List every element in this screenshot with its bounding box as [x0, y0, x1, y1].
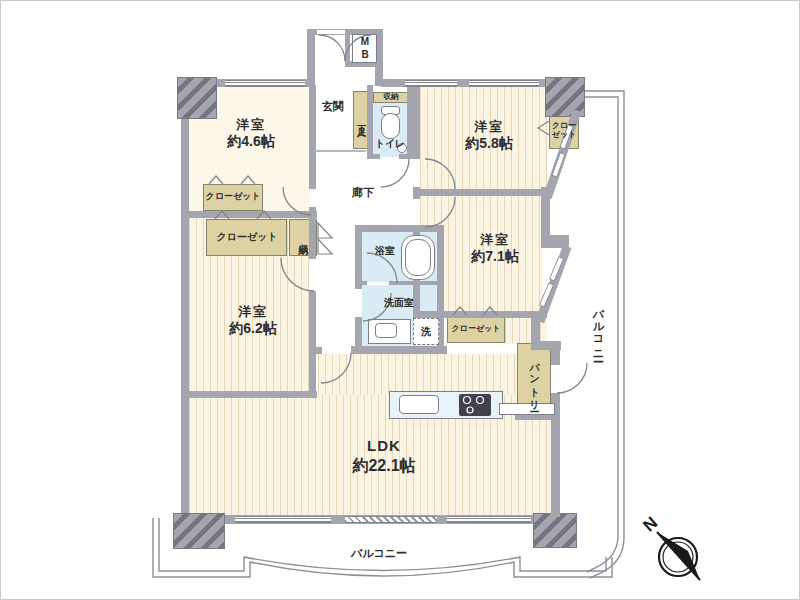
closet-chevron [453, 307, 467, 315]
bathroom-door-arc [367, 253, 397, 283]
ldk-door-arc [321, 353, 351, 383]
window [540, 283, 554, 307]
toilet-door-arc [381, 159, 409, 187]
room-name: 洋室 [465, 119, 512, 135]
bifold-door [318, 239, 332, 254]
room-label-bedroom71: 洋室 約7.1帖 [471, 232, 518, 266]
shoe-box-label: 下足入 [355, 119, 368, 122]
bedroom71-door-arc [425, 197, 455, 227]
toilet-label: トイレ [375, 138, 406, 151]
room-size: 約22.1帖 [352, 455, 415, 475]
room-label-bedroom58: 洋室 約5.8帖 [465, 119, 512, 153]
washroom-label: 洗面室 [384, 297, 414, 310]
room-size: 約6.2帖 [229, 320, 276, 338]
storage-label-bedroom62: 収納 [296, 236, 310, 238]
room-name: LDK [352, 437, 415, 456]
bedroom62-door-arc [281, 258, 314, 291]
room-size: 約4.6帖 [227, 133, 274, 151]
room-label-ldk: LDK 約22.1帖 [352, 437, 415, 476]
door-arcs [281, 35, 587, 393]
kitchen-stove-burners [464, 397, 484, 414]
balcony-door-arc [557, 363, 587, 393]
entrance-door-arc [319, 35, 345, 61]
balcony-bottom-inner [159, 518, 606, 571]
closet-chevron [241, 176, 255, 184]
closet-chevron [209, 176, 223, 184]
room-size: 約7.1帖 [471, 248, 518, 266]
window [552, 153, 565, 177]
room-size: 約5.8帖 [465, 135, 512, 153]
room-name: 洋室 [227, 117, 274, 133]
bedroom58-door-arc [425, 159, 455, 189]
closet-label-bedroom58: クローゼット [551, 121, 577, 139]
bedroom46-door-arc [283, 187, 311, 215]
closet-chevron [538, 121, 549, 135]
room-label-bedroom46: 洋室 約4.6帖 [227, 117, 274, 151]
burner [464, 397, 471, 404]
closet-label-bedroom71: クローゼット [452, 324, 501, 333]
hallway-label: 廊下 [352, 186, 374, 200]
bifold-door [318, 223, 332, 238]
balcony-outline [153, 91, 624, 578]
burner [467, 407, 473, 413]
closet-chevron [257, 211, 271, 219]
floor-plan: N 洋室 約4.6帖 洋室 約5.8帖 洋室 約7.1帖 洋室 約6.2帖 LD… [0, 0, 800, 600]
washer-label: 洗 [421, 326, 431, 339]
window [550, 257, 564, 281]
room-name: 洋室 [229, 304, 276, 320]
pantry-label: パントリー [527, 356, 541, 406]
room-name: 洋室 [471, 232, 518, 248]
diagonal-windows [540, 125, 573, 307]
balcony-right-label: バルコニー [591, 301, 606, 356]
meter-box-label: MB [359, 36, 372, 61]
compass: N [639, 513, 700, 580]
closet-chevron [215, 211, 229, 219]
closet-chevron [483, 307, 497, 315]
closet-label-bedroom62: クローゼット [216, 231, 277, 244]
entrance-label: 玄関 [322, 100, 344, 114]
closet-label-bedroom46: クローゼット [205, 191, 260, 202]
bathroom-label: 浴室 [375, 245, 395, 258]
storage-label-toilet: 収納 [384, 92, 399, 101]
burner [477, 397, 484, 404]
room-label-bedroom62: 洋室 約6.2帖 [229, 304, 276, 338]
balcony-bottom-label: バルコニー [351, 547, 407, 561]
